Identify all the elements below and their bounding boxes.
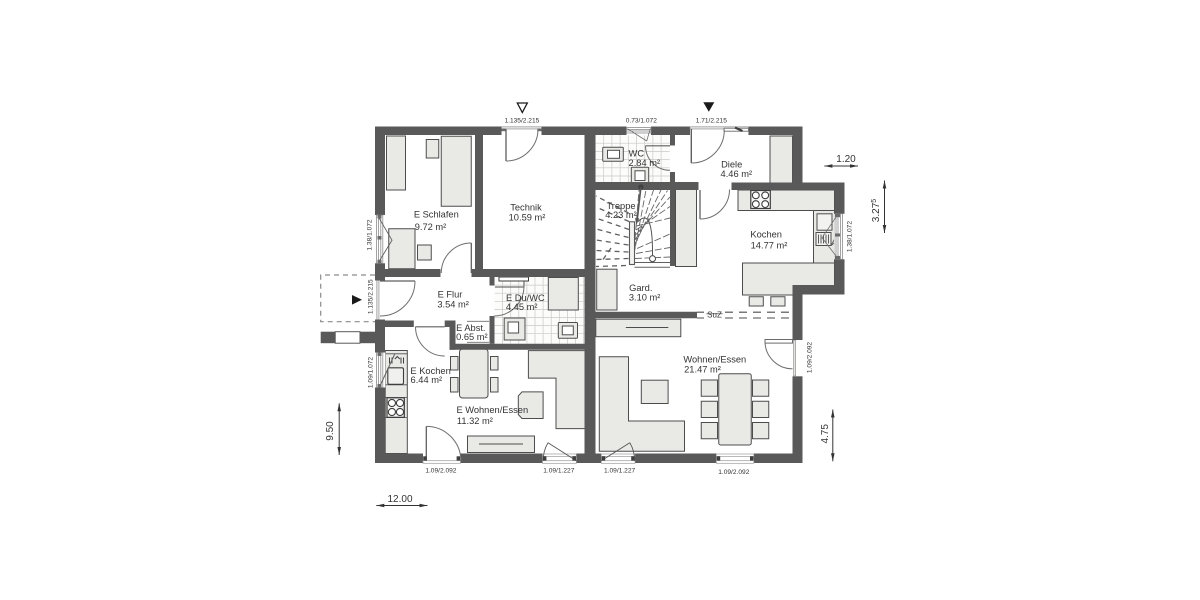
svg-text:1.09/2.092: 1.09/2.092 — [425, 468, 456, 475]
svg-text:Gard.: Gard. — [629, 283, 652, 293]
svg-text:4.23 m²: 4.23 m² — [605, 210, 637, 220]
svg-text:0.73/1.072: 0.73/1.072 — [626, 118, 657, 125]
svg-text:1.38/1.072: 1.38/1.072 — [367, 219, 374, 250]
svg-text:11.32 m²: 11.32 m² — [457, 416, 493, 426]
svg-text:10.59 m²: 10.59 m² — [509, 213, 546, 223]
svg-text:6.44 m²: 6.44 m² — [411, 375, 443, 385]
svg-text:E Wohnen/Essen: E Wohnen/Essen — [456, 405, 528, 415]
svg-text:1.71/2.215: 1.71/2.215 — [696, 118, 727, 125]
svg-text:0.65 m²: 0.65 m² — [456, 332, 488, 342]
svg-text:9.50: 9.50 — [325, 421, 336, 441]
svg-text:1.09/1.072: 1.09/1.072 — [368, 357, 375, 388]
svg-text:1.09/1.227: 1.09/1.227 — [604, 468, 635, 475]
svg-text:E Flur: E Flur — [438, 290, 463, 300]
svg-text:1.09/2.092: 1.09/2.092 — [718, 469, 749, 476]
svg-text:1.135/2.215: 1.135/2.215 — [368, 279, 375, 314]
svg-text:12.00: 12.00 — [387, 494, 412, 505]
svg-text:E Schlafen: E Schlafen — [414, 210, 459, 220]
svg-text:1.38/1.072: 1.38/1.072 — [847, 221, 854, 252]
svg-text:SuZ: SuZ — [707, 310, 722, 319]
svg-text:21.47 m²: 21.47 m² — [684, 365, 721, 375]
svg-text:Kochen: Kochen — [750, 230, 782, 240]
svg-text:Wohnen/Essen: Wohnen/Essen — [683, 355, 746, 365]
svg-text:3.54 m²: 3.54 m² — [437, 300, 469, 310]
svg-text:1.135/2.215: 1.135/2.215 — [504, 118, 539, 125]
svg-text:9.72 m²: 9.72 m² — [415, 222, 447, 232]
svg-text:4.75: 4.75 — [820, 424, 831, 444]
svg-text:2.84 m²: 2.84 m² — [629, 158, 661, 168]
svg-text:1.09/2.092: 1.09/2.092 — [806, 342, 813, 373]
svg-text:14.77 m²: 14.77 m² — [751, 241, 788, 251]
svg-text:3.10 m²: 3.10 m² — [629, 293, 661, 303]
svg-text:1.20: 1.20 — [836, 154, 856, 165]
svg-text:1.09/1.227: 1.09/1.227 — [543, 468, 574, 475]
svg-text:4.46 m²: 4.46 m² — [721, 169, 753, 179]
svg-text:4.45 m²: 4.45 m² — [506, 302, 538, 312]
svg-text:Technik: Technik — [510, 203, 542, 213]
svg-text:WC: WC — [629, 148, 645, 158]
